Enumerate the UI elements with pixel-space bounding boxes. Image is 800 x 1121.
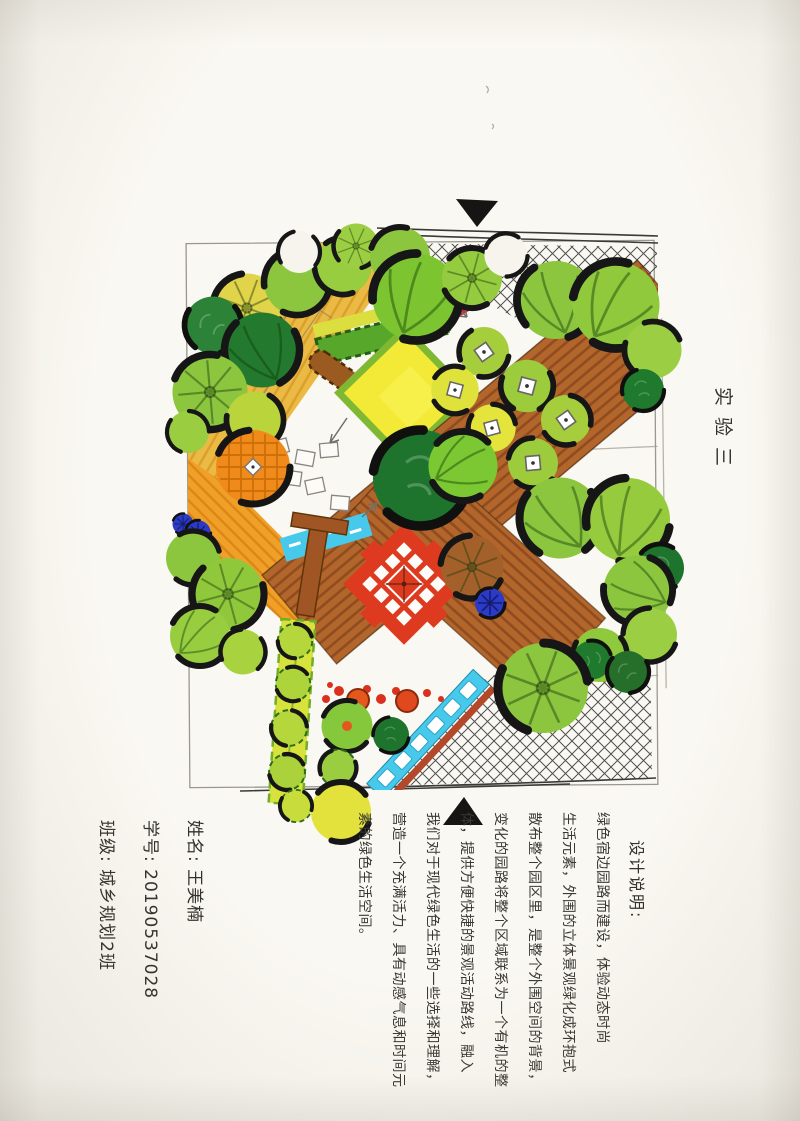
design-note-line: 营造一个充满活力、具有动感气息和时间元 <box>381 812 415 1082</box>
design-note-line: 素的绿色生活空间。 <box>347 812 381 1082</box>
design-note-line: 变化的园路将整个区域联系为一个有机的整 <box>483 812 517 1082</box>
student-name-line: 姓名: 王美楠 <box>172 820 216 1010</box>
entrance-arrow-top <box>456 199 498 227</box>
design-note-heading: 设计说明: <box>619 812 653 1082</box>
sheet-title-vertical: 实验三 <box>696 387 738 475</box>
design-note-line: 绿色宿边园路而建设，体验动态时尚 <box>585 812 619 1082</box>
sheet-title-text: 实验三 <box>712 387 734 477</box>
design-note-line: 生活元素，外围的立体景观绿化成环抱式 <box>551 812 585 1082</box>
design-note-line: 散布整个园区里，是整个外围空间的背景， <box>517 812 551 1082</box>
class-label: 班级: <box>96 820 116 863</box>
blue-flower <box>475 588 505 618</box>
design-note-block: 设计说明: 绿色宿边园路而建设，体验动态时尚 生活元素，外围的立体景观绿化成环抱… <box>347 812 653 1082</box>
tree-canopy <box>622 369 664 411</box>
id-value: 20190537028 <box>140 869 160 999</box>
student-id-line: 学号: 20190537028 <box>128 820 172 1010</box>
design-note-line: 我们对于现代绿色生活的一些选择和理解， <box>415 812 449 1082</box>
student-info-block: 姓名: 王美楠 学号: 20190537028 班级: 城乡规划2班 <box>84 820 216 1010</box>
id-label: 学号: <box>140 820 160 863</box>
name-label: 姓名: <box>184 820 204 863</box>
student-class-line: 班级: 城乡规划2班 <box>84 820 128 1010</box>
stray-pencil-mark <box>486 86 494 129</box>
name-value: 王美楠 <box>184 869 204 923</box>
design-note-line: 体，提供方便快捷的景观活动路线，融入 <box>449 812 483 1082</box>
class-value: 城乡规划2班 <box>96 869 116 971</box>
scanned-design-sheet: 实验三 姓名: 王美楠 学号: 20190537028 班级: 城乡规划2班 设… <box>0 0 800 1121</box>
